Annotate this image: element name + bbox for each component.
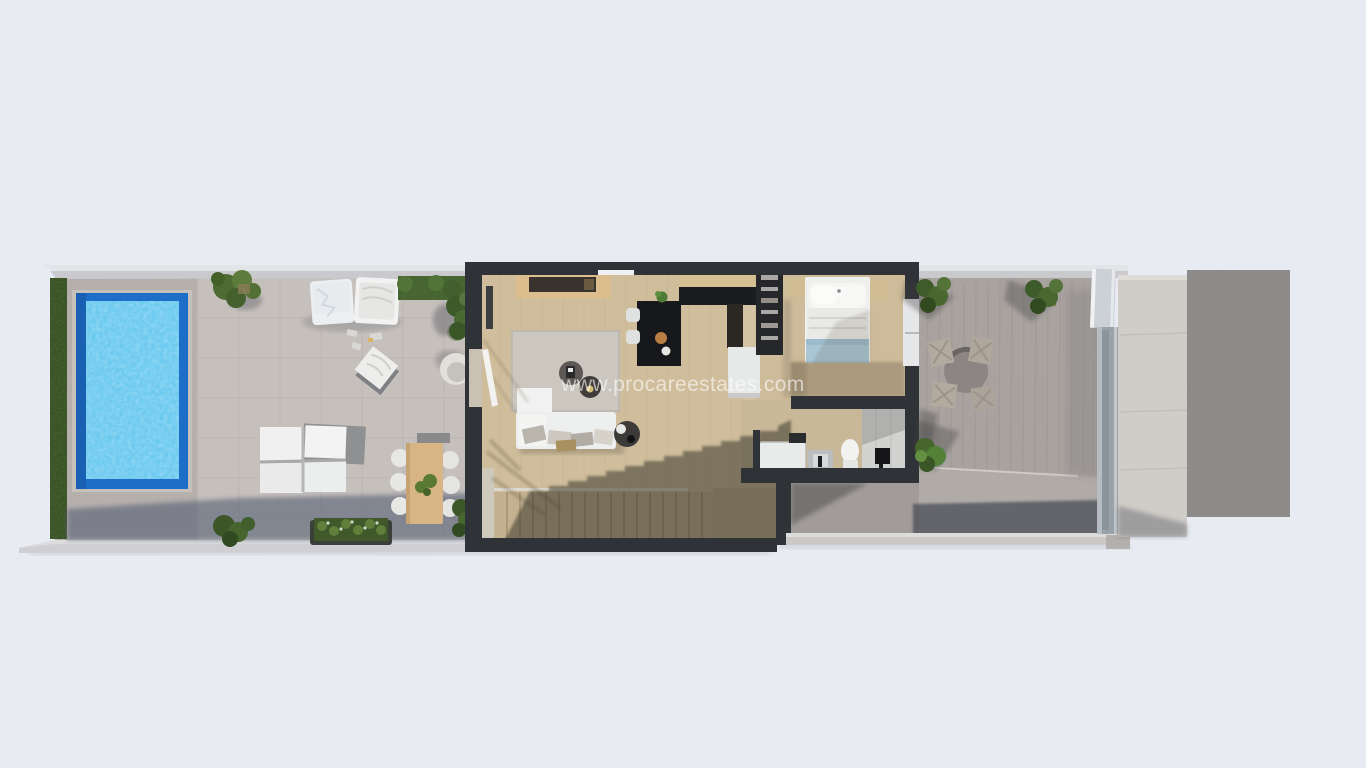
svg-text:www.procareestates.com: www.procareestates.com xyxy=(560,373,804,396)
